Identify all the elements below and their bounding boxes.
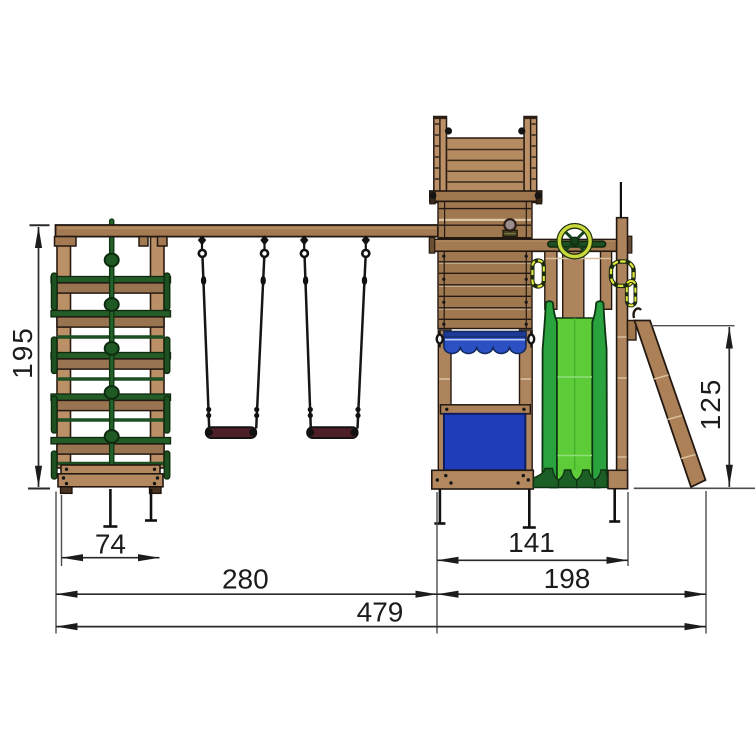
svg-text:195: 195 [7,326,38,379]
svg-text:74: 74 [95,528,126,559]
svg-text:125: 125 [695,378,726,431]
svg-text:479: 479 [357,596,404,627]
svg-text:280: 280 [222,563,269,594]
svg-text:198: 198 [544,563,591,594]
svg-text:141: 141 [508,527,555,558]
